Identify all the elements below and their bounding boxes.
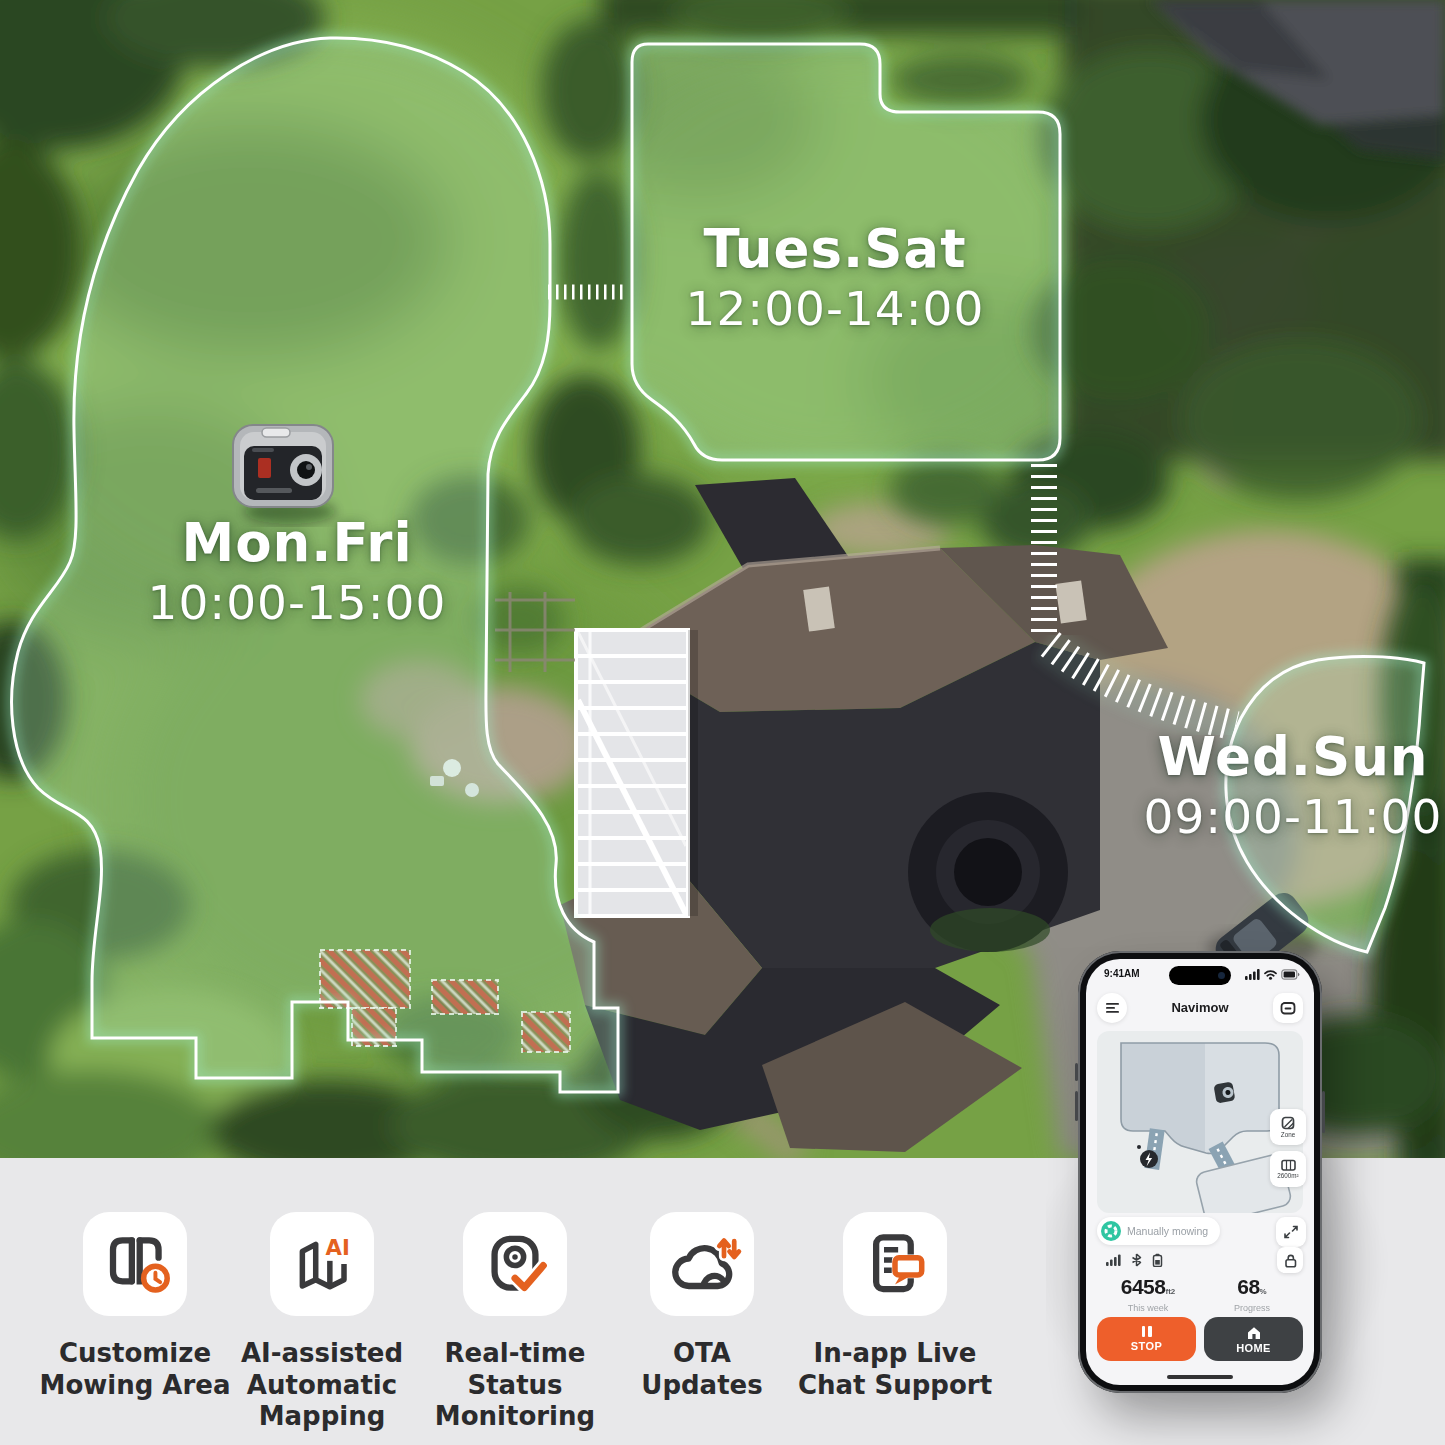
cloud-sync-icon xyxy=(658,1220,746,1308)
pause-icon xyxy=(1142,1326,1152,1337)
feature-tile xyxy=(843,1212,947,1316)
map-ai-icon: AI xyxy=(278,1220,366,1308)
cellular-signal-icon xyxy=(1245,969,1260,980)
action-buttons: STOP HOME xyxy=(1097,1317,1303,1361)
product-hero: Mon.Fri 10:00-15:00 Tues.Sat 12:00-14:00… xyxy=(0,0,1445,1445)
zone-button-label: Zone xyxy=(1281,1131,1295,1137)
battery-icon xyxy=(1281,969,1301,980)
map-area-label: 2600m² xyxy=(1277,1172,1298,1178)
ai-badge: AI xyxy=(326,1235,350,1260)
dynamic-island xyxy=(1169,966,1231,985)
monitor-check-icon xyxy=(471,1220,559,1308)
progress-caption: Progress xyxy=(1204,1303,1300,1313)
area-unit: ft2 xyxy=(1165,1287,1175,1296)
mowing-status-text: Manually mowing xyxy=(1127,1225,1208,1237)
feature-label: Real-time Status Monitoring xyxy=(415,1338,615,1433)
status-bar-icons xyxy=(1245,969,1301,980)
feature-tile xyxy=(463,1212,567,1316)
schedule-label-tues-sat: Tues.Sat 12:00-14:00 xyxy=(640,218,1030,336)
messages-button[interactable] xyxy=(1273,993,1303,1023)
power-button xyxy=(1322,1091,1325,1133)
expand-map-button[interactable] xyxy=(1276,1217,1306,1247)
phone-mockup: 9:41AM xyxy=(1078,951,1322,1393)
stop-button[interactable]: STOP xyxy=(1097,1317,1196,1361)
schedule-days: Wed.Sun xyxy=(1098,726,1445,787)
wifi-icon xyxy=(1263,969,1278,980)
bluetooth-icon xyxy=(1131,1253,1142,1267)
expand-icon xyxy=(1284,1225,1298,1239)
progress-stat: 68% Progress xyxy=(1204,1275,1300,1313)
map-robot-marker xyxy=(1213,1082,1235,1104)
lock-button[interactable] xyxy=(1277,1247,1303,1273)
feature-ai-mapping: AI AI-assisted Automatic Mapping xyxy=(222,1212,422,1433)
feature-label: Customize Mowing Area xyxy=(35,1338,235,1401)
area-caption: This week xyxy=(1100,1303,1196,1313)
app-screen: 9:41AM xyxy=(1086,959,1314,1385)
schedule-time: 10:00-15:00 xyxy=(102,575,492,630)
schedule-time: 12:00-14:00 xyxy=(640,281,1030,336)
robot-signal-icon xyxy=(1106,1254,1121,1266)
front-camera xyxy=(1218,972,1225,979)
volume-button xyxy=(1075,1091,1078,1121)
area-stat: 6458ft2 This week xyxy=(1100,1275,1196,1313)
feature-tile: AI xyxy=(270,1212,374,1316)
zone-button[interactable]: Zone xyxy=(1270,1109,1306,1145)
connectivity-icons xyxy=(1106,1253,1163,1267)
mowing-status-pill: Manually mowing xyxy=(1097,1217,1220,1245)
schedule-label-mon-fri: Mon.Fri 10:00-15:00 xyxy=(102,512,492,630)
schedule-time: 09:00-11:00 xyxy=(1098,789,1445,844)
map-book-icon xyxy=(1281,1159,1296,1171)
message-icon xyxy=(1280,1001,1296,1015)
feature-live-chat: In-app Live Chat Support xyxy=(795,1212,995,1401)
home-button-label: HOME xyxy=(1236,1342,1271,1354)
schedule-days: Mon.Fri xyxy=(102,512,492,573)
home-indicator xyxy=(1167,1375,1233,1379)
doc-chat-icon xyxy=(851,1220,939,1308)
map-area-button[interactable]: 2600m² xyxy=(1270,1151,1306,1187)
stop-button-label: STOP xyxy=(1131,1340,1162,1352)
feature-ota-updates: OTA Updates xyxy=(602,1212,802,1401)
home-icon xyxy=(1246,1325,1262,1340)
area-value: 6458 xyxy=(1121,1275,1166,1298)
status-bar-time: 9:41AM xyxy=(1104,968,1140,979)
robot-mower xyxy=(233,425,336,524)
feature-tile xyxy=(83,1212,187,1316)
schedule-days: Tues.Sat xyxy=(640,218,1030,279)
zone-icon xyxy=(1281,1116,1295,1130)
progress-value: 68 xyxy=(1237,1275,1259,1298)
feature-customize-mowing-area: Customize Mowing Area xyxy=(35,1212,235,1401)
mowing-spinner-icon xyxy=(1101,1221,1121,1241)
volume-button xyxy=(1075,1063,1078,1081)
mowing-area-clock-icon xyxy=(91,1220,179,1308)
progress-unit: % xyxy=(1260,1287,1267,1296)
schedule-label-wed-sun: Wed.Sun 09:00-11:00 xyxy=(1098,726,1445,844)
feature-tile xyxy=(650,1212,754,1316)
feature-label: In-app Live Chat Support xyxy=(795,1338,995,1401)
lock-icon xyxy=(1283,1253,1298,1268)
robot-battery-icon xyxy=(1152,1253,1163,1267)
feature-label: OTA Updates xyxy=(602,1338,802,1401)
feature-realtime-monitoring: Real-time Status Monitoring xyxy=(415,1212,615,1433)
feature-label: AI-assisted Automatic Mapping xyxy=(222,1338,422,1433)
home-button[interactable]: HOME xyxy=(1204,1317,1303,1361)
